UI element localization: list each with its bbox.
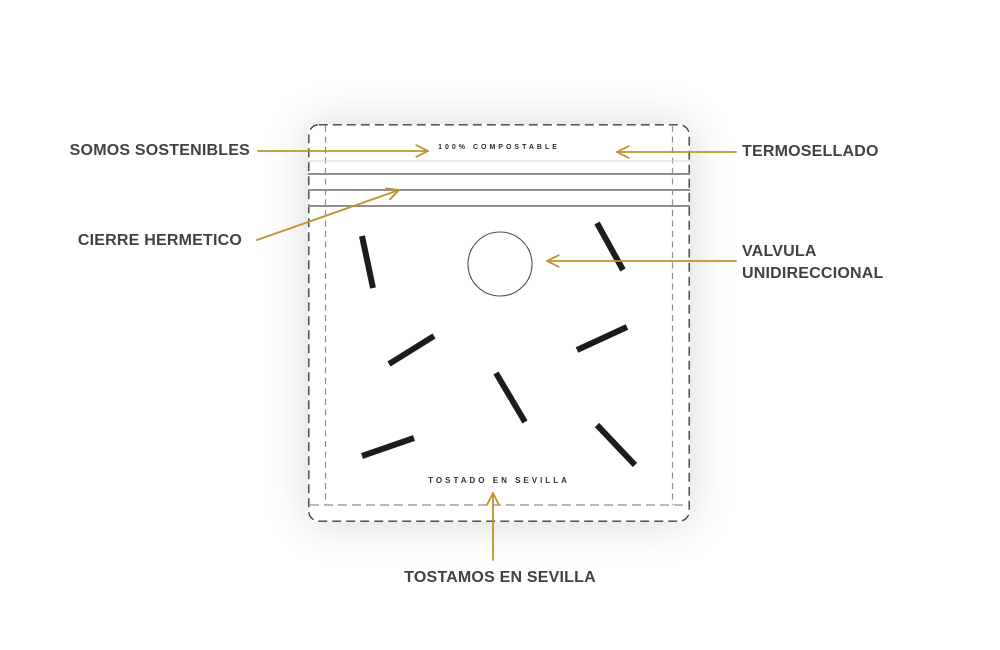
callout-cierre-hermetico: CIERRE HERMETICO [78, 231, 242, 250]
coffee-bag: 100% COMPOSTABLE TOSTADO EN SEVILLA [308, 124, 690, 522]
callout-valvula-unidireccional: VALVULA UNIDIRECCIONAL [742, 241, 892, 285]
packaging-diagram: 100% COMPOSTABLE TOSTADO EN SEVILLA SOMO… [0, 0, 1000, 650]
bag-compostable-text: 100% COMPOSTABLE [308, 143, 690, 153]
callout-termosellado: TERMOSELLADO [742, 142, 879, 161]
callout-somos-sostenibles: SOMOS SOSTENIBLES [70, 141, 250, 160]
bag-roasted-in-seville-text: TOSTADO EN SEVILLA [308, 476, 690, 486]
callout-tostamos-en-sevilla: TOSTAMOS EN SEVILLA [0, 568, 1000, 587]
